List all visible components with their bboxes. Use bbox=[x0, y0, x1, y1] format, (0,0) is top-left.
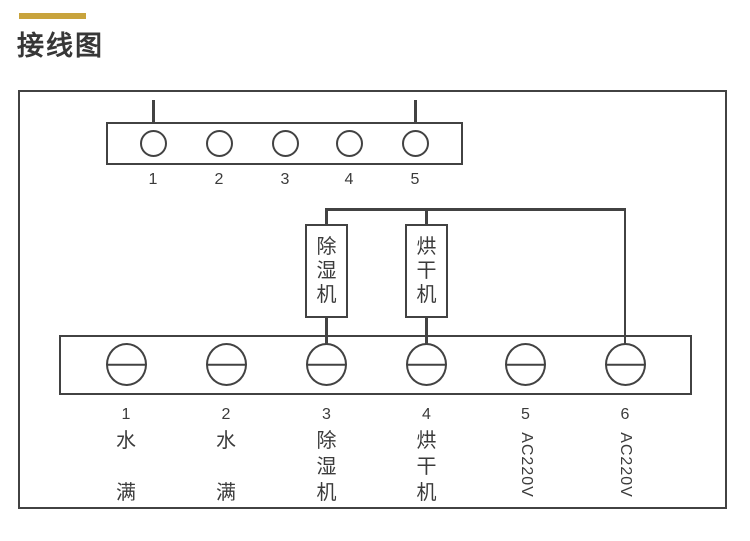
terminal-number-6: 6 bbox=[613, 406, 637, 424]
terminal-label-5: AC220V bbox=[517, 432, 535, 498]
component-label-char: 除 bbox=[317, 235, 337, 259]
component-label-char: 烘 bbox=[417, 235, 437, 259]
terminal-label-char: 水 bbox=[116, 428, 136, 454]
terminal-label-1: 水满 bbox=[113, 428, 139, 506]
top-pin-number-2: 2 bbox=[207, 171, 231, 189]
terminal-screw-slot bbox=[507, 363, 544, 366]
terminal-label-2: 水满 bbox=[213, 428, 239, 506]
top-pin-number-5: 5 bbox=[403, 171, 427, 189]
terminal-number-4: 4 bbox=[415, 406, 439, 424]
terminal-label-4: 烘干机 bbox=[414, 428, 440, 506]
top-pin-hole-3 bbox=[272, 130, 299, 157]
terminal-number-3: 3 bbox=[315, 406, 339, 424]
top-pin-hole-4 bbox=[336, 130, 363, 157]
component-label-char: 机 bbox=[317, 283, 337, 307]
accent-bar bbox=[19, 13, 86, 19]
top-pin-lead-5 bbox=[414, 100, 417, 122]
terminal-6 bbox=[605, 343, 646, 386]
terminal-label-3: 除湿机 bbox=[314, 428, 340, 506]
terminal-screw-slot bbox=[408, 363, 445, 366]
terminal-screw-slot bbox=[607, 363, 644, 366]
terminal-label-char: 干 bbox=[417, 454, 437, 480]
terminal-screw-slot bbox=[108, 363, 145, 366]
component-label-char: 机 bbox=[417, 283, 437, 307]
top-pin-hole-1 bbox=[140, 130, 167, 157]
terminal-label-char: 烘 bbox=[417, 428, 437, 454]
component-box-1: 除湿机 bbox=[305, 224, 348, 318]
terminal-5 bbox=[505, 343, 546, 386]
top-pin-lead-1 bbox=[152, 100, 155, 122]
top-pin-hole-2 bbox=[206, 130, 233, 157]
terminal-label-char: 机 bbox=[417, 480, 437, 506]
component-label-char: 湿 bbox=[317, 259, 337, 283]
terminal-number-2: 2 bbox=[214, 406, 238, 424]
page-title: 接线图 bbox=[17, 24, 104, 63]
terminal-label-char: 湿 bbox=[317, 454, 337, 480]
terminal-label-char: 满 bbox=[116, 480, 136, 506]
top-pin-number-1: 1 bbox=[141, 171, 165, 189]
terminal-3 bbox=[306, 343, 347, 386]
terminal-4 bbox=[406, 343, 447, 386]
top-pin-number-3: 3 bbox=[273, 171, 297, 189]
wire-component-2-to-terminal-4 bbox=[425, 317, 428, 345]
terminal-screw-slot bbox=[308, 363, 345, 366]
top-pin-hole-5 bbox=[402, 130, 429, 157]
component-box-2: 烘干机 bbox=[405, 224, 448, 318]
terminal-label-char: 除 bbox=[317, 428, 337, 454]
terminal-2 bbox=[206, 343, 247, 386]
page: 接线图 12345除湿机烘干机1水满2水满3除湿机4烘干机5AC220V6AC2… bbox=[0, 0, 750, 541]
terminal-label-char: 水 bbox=[216, 428, 236, 454]
terminal-1 bbox=[106, 343, 147, 386]
wire-component-1-to-terminal-3 bbox=[325, 317, 328, 345]
terminal-label-6: AC220V bbox=[616, 432, 634, 498]
bottom-terminal-strip bbox=[59, 335, 692, 395]
terminal-label-char: 满 bbox=[216, 480, 236, 506]
wire-bus-to-terminal-6 bbox=[624, 208, 627, 345]
terminal-number-5: 5 bbox=[514, 406, 538, 424]
component-label-char: 干 bbox=[417, 259, 437, 283]
wiring-diagram-frame: 12345除湿机烘干机1水满2水满3除湿机4烘干机5AC220V6AC220V bbox=[18, 90, 727, 509]
wire-bus bbox=[325, 208, 626, 211]
top-pin-number-4: 4 bbox=[337, 171, 361, 189]
terminal-label-char: 机 bbox=[317, 480, 337, 506]
terminal-number-1: 1 bbox=[114, 406, 138, 424]
terminal-screw-slot bbox=[208, 363, 245, 366]
